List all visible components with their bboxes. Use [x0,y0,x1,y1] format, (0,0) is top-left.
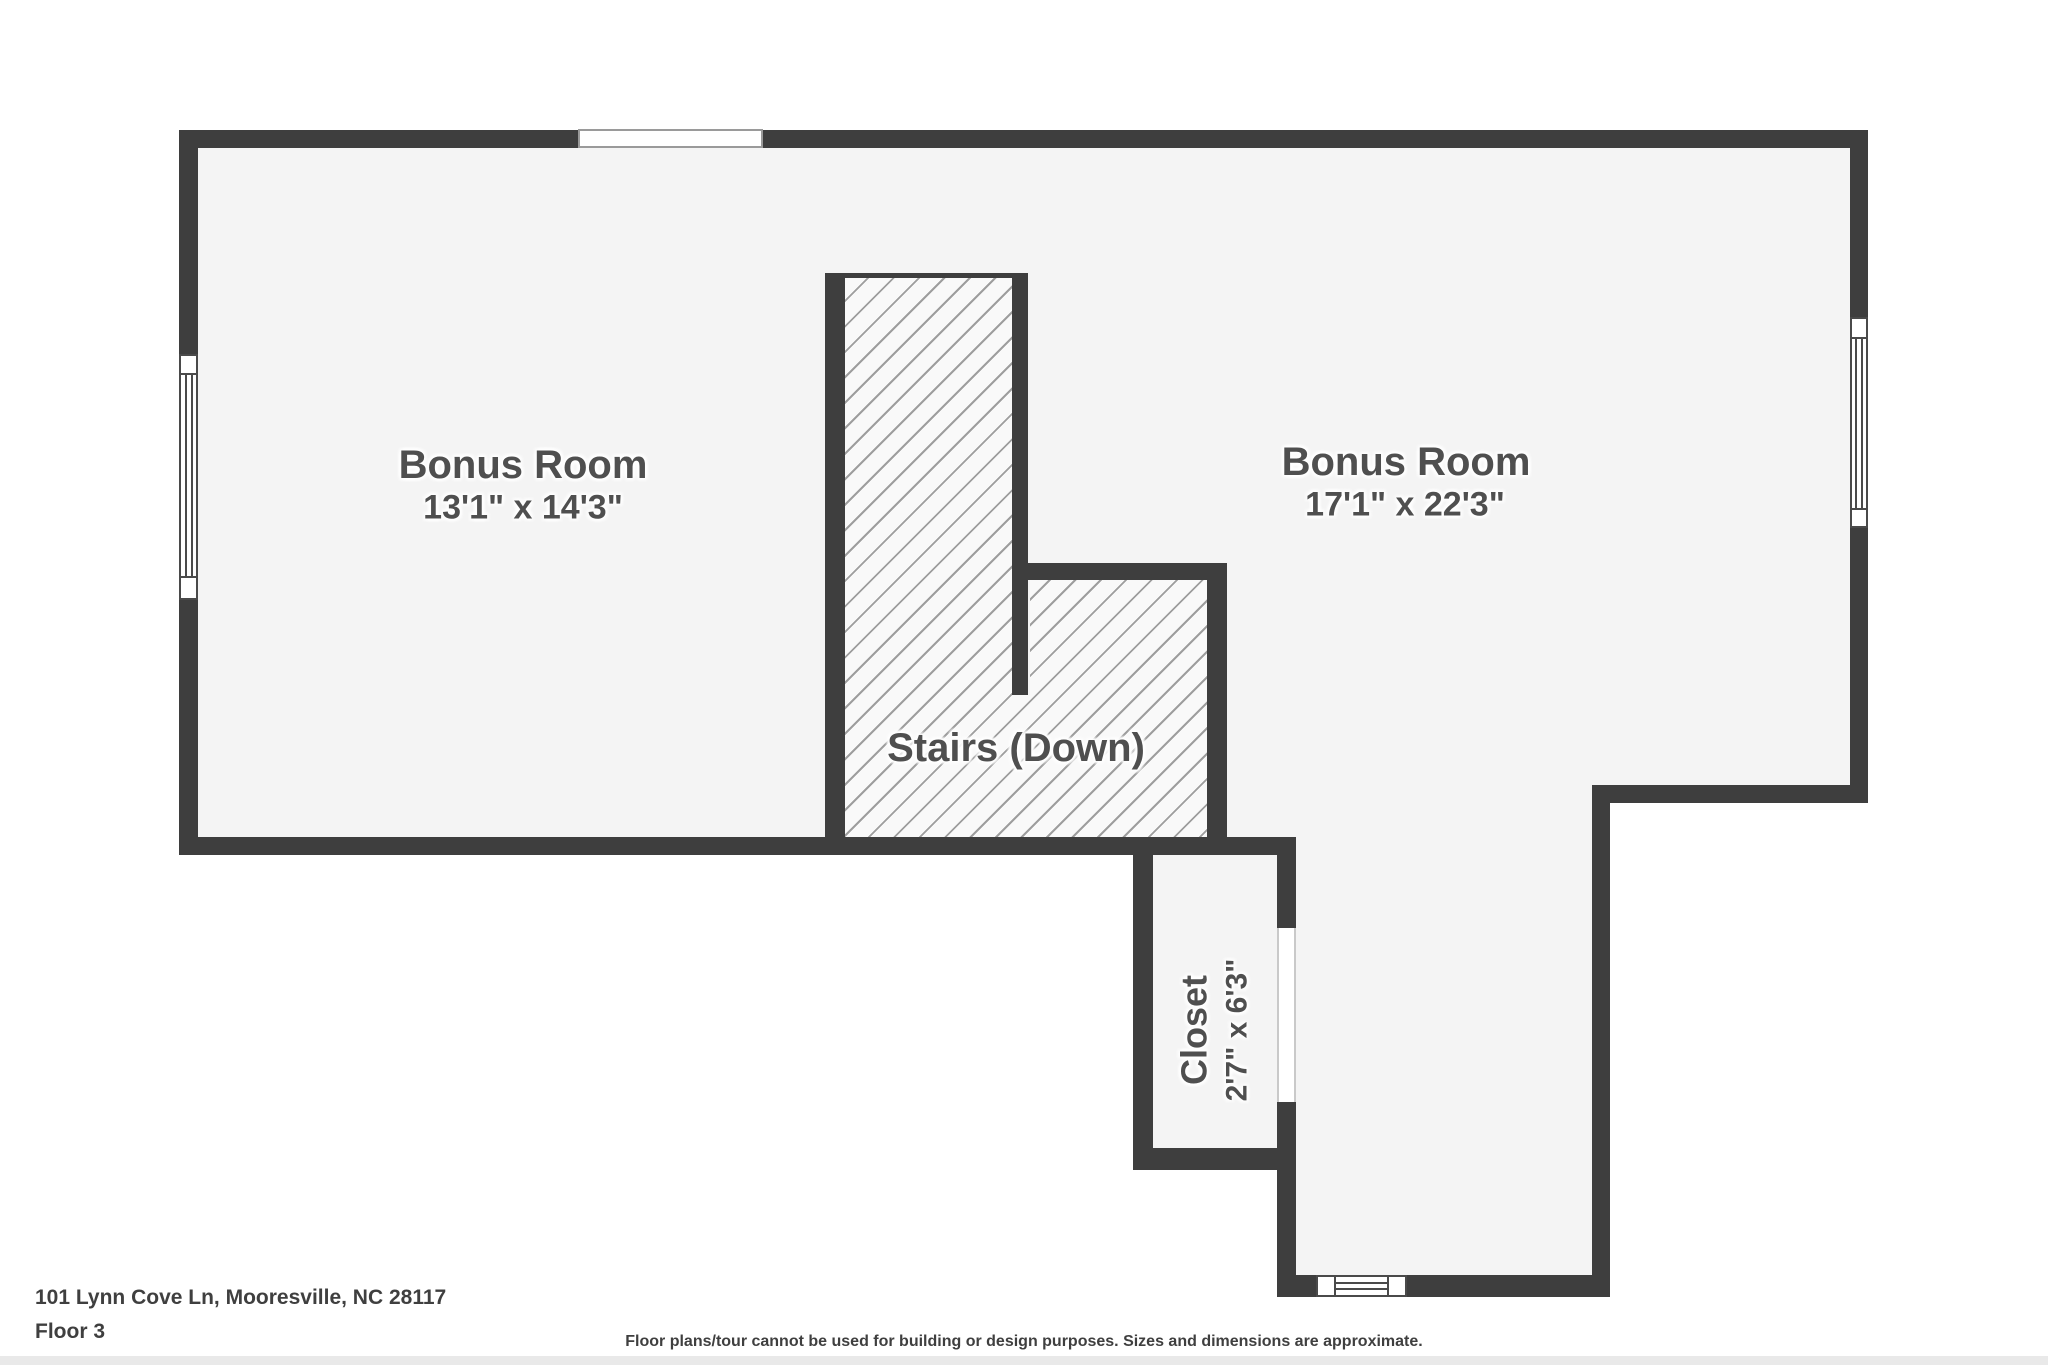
closet-door-opening [1277,928,1296,1102]
wall-closet-left [1133,837,1153,1170]
window-bottom-cap-right [1387,1277,1389,1295]
window-bottom-passage [1316,1275,1407,1297]
wall-step-bottom-right [1592,785,1868,803]
label-stairs: Stairs (Down) [887,726,1145,770]
window-left-glass-line [185,375,193,576]
label-closet: Closet 2'7" x 6'3" [1175,959,1254,1102]
wall-stairs-ext-right [1207,563,1227,837]
footer-address: 101 Lynn Cove Ln, Mooresville, NC 28117 [35,1286,446,1310]
floor-bonus-room-right [1592,148,1850,785]
floor-passage [1296,837,1592,1275]
wall-passage-right [1592,785,1610,1297]
stairs-top-edge-line [825,273,1028,278]
label-bonus-room-left-dimensions: 13'1" x 14'3" [423,489,623,526]
label-closet-dimensions: 2'7" x 6'3" [1220,959,1253,1102]
window-right-cap-bottom [1852,508,1866,510]
wall-stairs-left [825,273,845,837]
wall-stairs-inner [1012,273,1028,695]
label-closet-name: Closet [1175,959,1215,1102]
label-bonus-room-right-name: Bonus Room [1282,440,1531,484]
floor-plan-page: Bonus Room 13'1" x 14'3" Bonus Room 17'1… [0,0,2048,1365]
window-right-glass-line [1855,339,1863,508]
window-bottom-glass-line [1336,1282,1387,1290]
label-bonus-room-left-name: Bonus Room [399,443,648,487]
wall-bottom-main [179,837,1296,855]
footer-disclaimer: Floor plans/tour cannot be used for buil… [0,1333,2048,1351]
wall-top [179,130,1868,148]
window-left-cap-bottom [181,576,196,578]
label-bonus-room-right-dimensions: 17'1" x 22'3" [1305,486,1505,523]
window-right [1850,317,1868,528]
bottom-edge-strip [0,1356,2048,1365]
wall-closet-bottom [1133,1148,1296,1170]
wall-opening-top [578,129,763,148]
window-left [179,354,198,600]
wall-stairs-ext-top [1028,563,1227,580]
